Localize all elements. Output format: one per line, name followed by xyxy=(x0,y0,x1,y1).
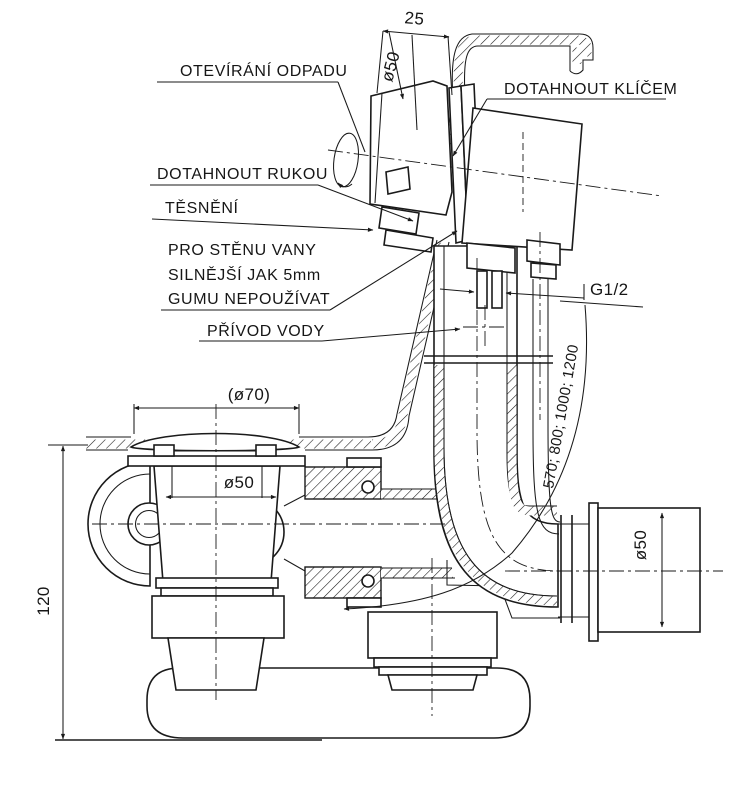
dim-waste-d50: ø50 xyxy=(224,473,255,492)
label-note-line1: PRO STĚNU VANY xyxy=(168,240,317,259)
overflow-downpipe-elbow xyxy=(424,246,558,607)
o-ring-top xyxy=(362,481,374,493)
bath-drain-technical-drawing: 25 ø50 G1/2 570; 800; 1000; 1200 (ø70) ø… xyxy=(0,0,740,800)
dim-25: 25 xyxy=(404,8,425,29)
o-ring-bottom xyxy=(362,575,374,587)
seal-gasket xyxy=(384,230,433,252)
label-privod-vody: PŘÍVOD VODY xyxy=(207,321,325,340)
dim-outlet-d50: ø50 xyxy=(631,530,650,561)
label-note-line3: GUMU NEPOUŽÍVAT xyxy=(168,289,330,308)
dim-120: 120 xyxy=(34,586,53,616)
label-otevirani-odpadu: OTEVÍRÁNÍ ODPADU xyxy=(180,61,348,80)
label-note-line2: SILNĚJŠÍ JAK 5mm xyxy=(168,265,321,284)
overflow-knob xyxy=(370,81,452,215)
technical-drawing-page: 25 ø50 G1/2 570; 800; 1000; 1200 (ø70) ø… xyxy=(0,0,740,800)
dim-g12: G1/2 xyxy=(590,280,628,299)
waste-horizontal-union xyxy=(284,458,455,607)
label-dotahnout-klicem: DOTAHNOUT KLÍČEM xyxy=(504,79,677,98)
label-dotahnout-rukou: DOTAHNOUT RUKOU xyxy=(157,166,328,183)
inlet-stub xyxy=(467,243,515,273)
dim-overflow-d50: ø50 xyxy=(378,49,404,83)
dim-cap-d70: (ø70) xyxy=(228,385,271,404)
drain-waste xyxy=(88,434,305,691)
outlet-body xyxy=(598,508,700,632)
outlet-flange xyxy=(589,503,598,641)
rotation-symbol xyxy=(330,132,361,189)
dim-pipe-lengths: 570; 800; 1000; 1200 xyxy=(540,343,582,490)
dimensions: 25 ø50 G1/2 570; 800; 1000; 1200 (ø70) ø… xyxy=(34,8,662,739)
overflow-body xyxy=(462,108,582,250)
trap-nut xyxy=(368,612,497,658)
drain-flange xyxy=(128,456,305,466)
waste-union-nut xyxy=(152,596,284,638)
label-tesneni: TĚSNĚNÍ xyxy=(165,198,239,217)
outlet-pipe xyxy=(558,503,700,641)
